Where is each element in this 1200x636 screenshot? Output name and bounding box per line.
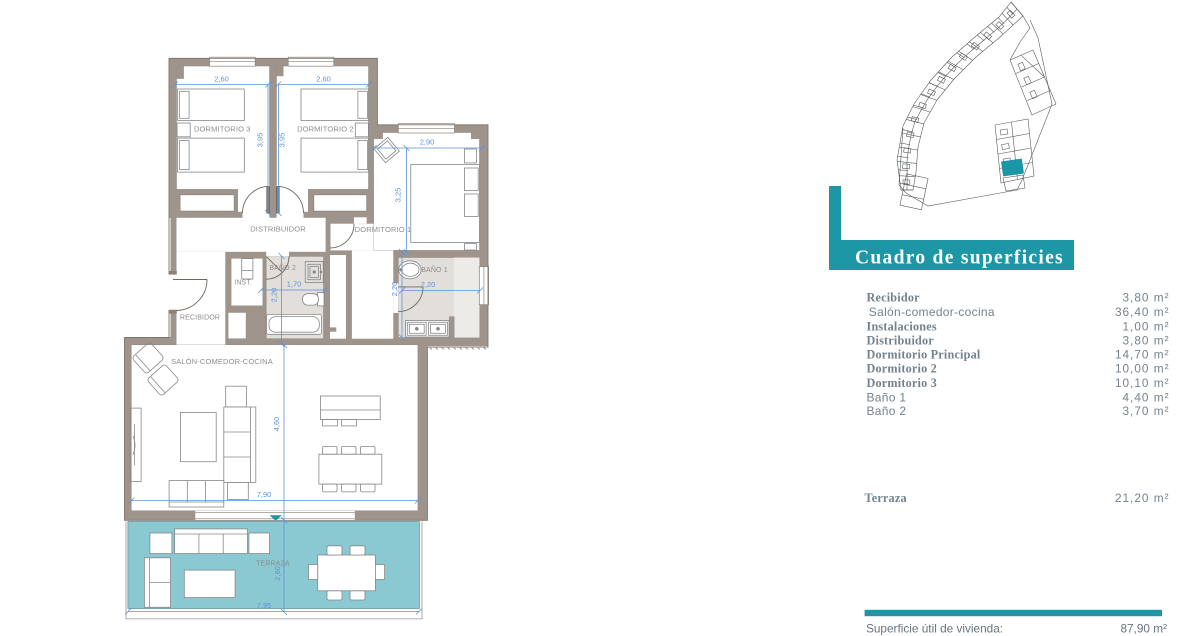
svg-text:36,40 m²: 36,40 m² <box>1115 305 1170 319</box>
svg-text:Terraza: Terraza <box>865 491 907 505</box>
svg-text:DORMITORIO 3: DORMITORIO 3 <box>194 125 251 134</box>
svg-text:7,90: 7,90 <box>257 490 272 499</box>
svg-text:Dormitorio 3: Dormitorio 3 <box>867 376 937 390</box>
svg-text:2,20: 2,20 <box>421 280 436 289</box>
svg-text:2,60: 2,60 <box>316 75 331 84</box>
svg-text:DORMITORIO 1: DORMITORIO 1 <box>355 225 412 234</box>
svg-text:Baño 2: Baño 2 <box>867 404 907 418</box>
svg-text:3,25: 3,25 <box>394 188 403 203</box>
svg-text:Distribuidor: Distribuidor <box>867 334 935 348</box>
svg-text:10,00 m²: 10,00 m² <box>1115 362 1170 376</box>
svg-text:10,10 m²: 10,10 m² <box>1115 376 1170 390</box>
svg-text:3,95: 3,95 <box>256 133 265 148</box>
svg-text:TERRAZA: TERRAZA <box>256 561 290 568</box>
svg-text:Instalaciones: Instalaciones <box>867 320 937 334</box>
svg-text:4,40 m²: 4,40 m² <box>1123 390 1170 404</box>
svg-text:Dormitorio Principal: Dormitorio Principal <box>867 348 981 362</box>
svg-text:RECIBIDOR: RECIBIDOR <box>180 315 220 322</box>
svg-text:3,80 m²: 3,80 m² <box>1123 290 1170 304</box>
svg-text:2,60: 2,60 <box>214 75 229 84</box>
svg-text:Salón-comedor-cocina: Salón-comedor-cocina <box>869 305 995 319</box>
svg-text:DISTRIBUIDOR: DISTRIBUIDOR <box>250 225 306 234</box>
svg-text:BAÑO 2: BAÑO 2 <box>269 263 296 272</box>
svg-text:2,90: 2,90 <box>420 138 435 147</box>
svg-text:Superficie útil de vivienda:: Superficie útil de vivienda: <box>866 622 1003 636</box>
svg-text:1,00 m²: 1,00 m² <box>1123 320 1170 334</box>
svg-text:2,20: 2,20 <box>270 288 279 303</box>
svg-text:SALÓN-COMEDOR-COCINA: SALÓN-COMEDOR-COCINA <box>171 357 273 366</box>
svg-text:BAÑO 1: BAÑO 1 <box>421 265 448 274</box>
svg-text:Cuadro de superficies: Cuadro de superficies <box>855 248 1064 269</box>
svg-text:Dormitorio 2: Dormitorio 2 <box>867 362 937 376</box>
svg-text:87,90 m²: 87,90 m² <box>1120 622 1167 636</box>
svg-text:1,70: 1,70 <box>287 280 302 289</box>
svg-text:INST.: INST. <box>234 280 252 287</box>
svg-text:DORMITORIO 2: DORMITORIO 2 <box>297 125 354 134</box>
svg-text:Baño 1: Baño 1 <box>867 390 907 404</box>
svg-text:4,60: 4,60 <box>272 417 281 432</box>
svg-text:3,80 m²: 3,80 m² <box>1123 334 1170 348</box>
svg-text:7,95: 7,95 <box>257 601 272 610</box>
svg-text:2,60: 2,60 <box>273 566 282 581</box>
svg-text:14,70 m²: 14,70 m² <box>1115 348 1170 362</box>
svg-text:3,95: 3,95 <box>278 133 287 148</box>
svg-text:3,70 m²: 3,70 m² <box>1123 404 1170 418</box>
svg-text:Recibidor: Recibidor <box>867 290 921 304</box>
svg-text:2,20: 2,20 <box>390 282 399 297</box>
svg-text:21,20 m²: 21,20 m² <box>1115 491 1170 505</box>
